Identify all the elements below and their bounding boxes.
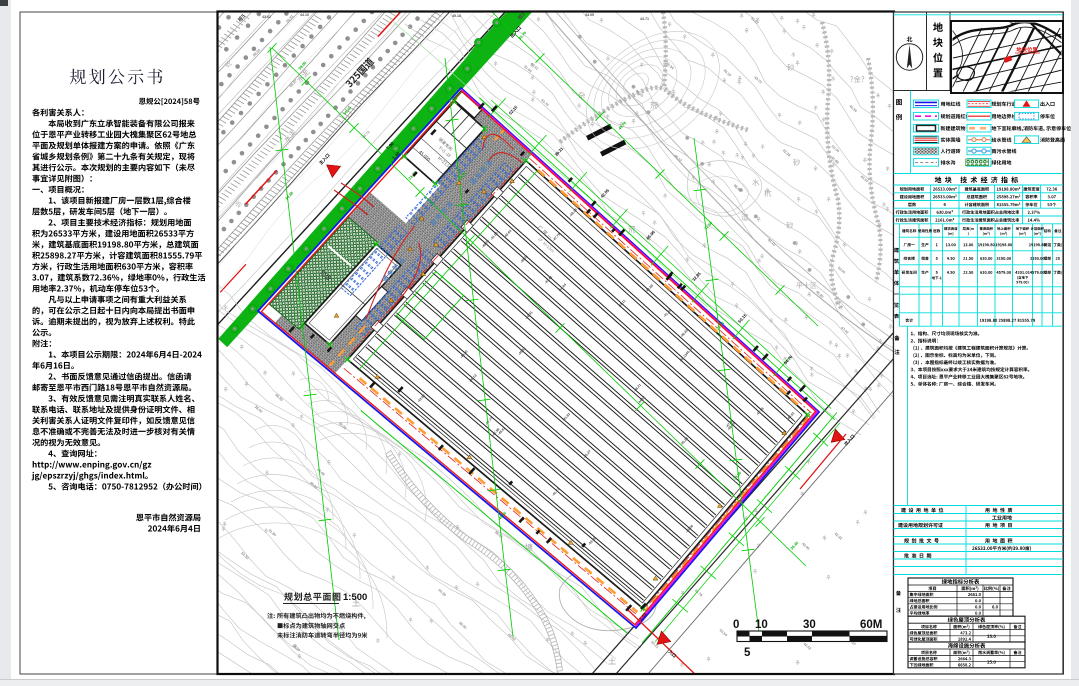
svg-text:0: 0 <box>733 619 739 631</box>
svg-text:45.18: 45.18 <box>452 14 461 18</box>
svg-text:44.05: 44.05 <box>585 13 594 17</box>
svg-text:30: 30 <box>803 619 816 631</box>
svg-text:1:500: 1:500 <box>343 592 367 603</box>
svg-text:10: 10 <box>755 619 768 631</box>
svg-text:43.71: 43.71 <box>640 17 649 21</box>
svg-text:44.10: 44.10 <box>300 13 309 17</box>
svg-text:43.62: 43.62 <box>262 15 271 19</box>
svg-text:5: 5 <box>744 647 751 659</box>
svg-text:60M: 60M <box>860 619 882 631</box>
